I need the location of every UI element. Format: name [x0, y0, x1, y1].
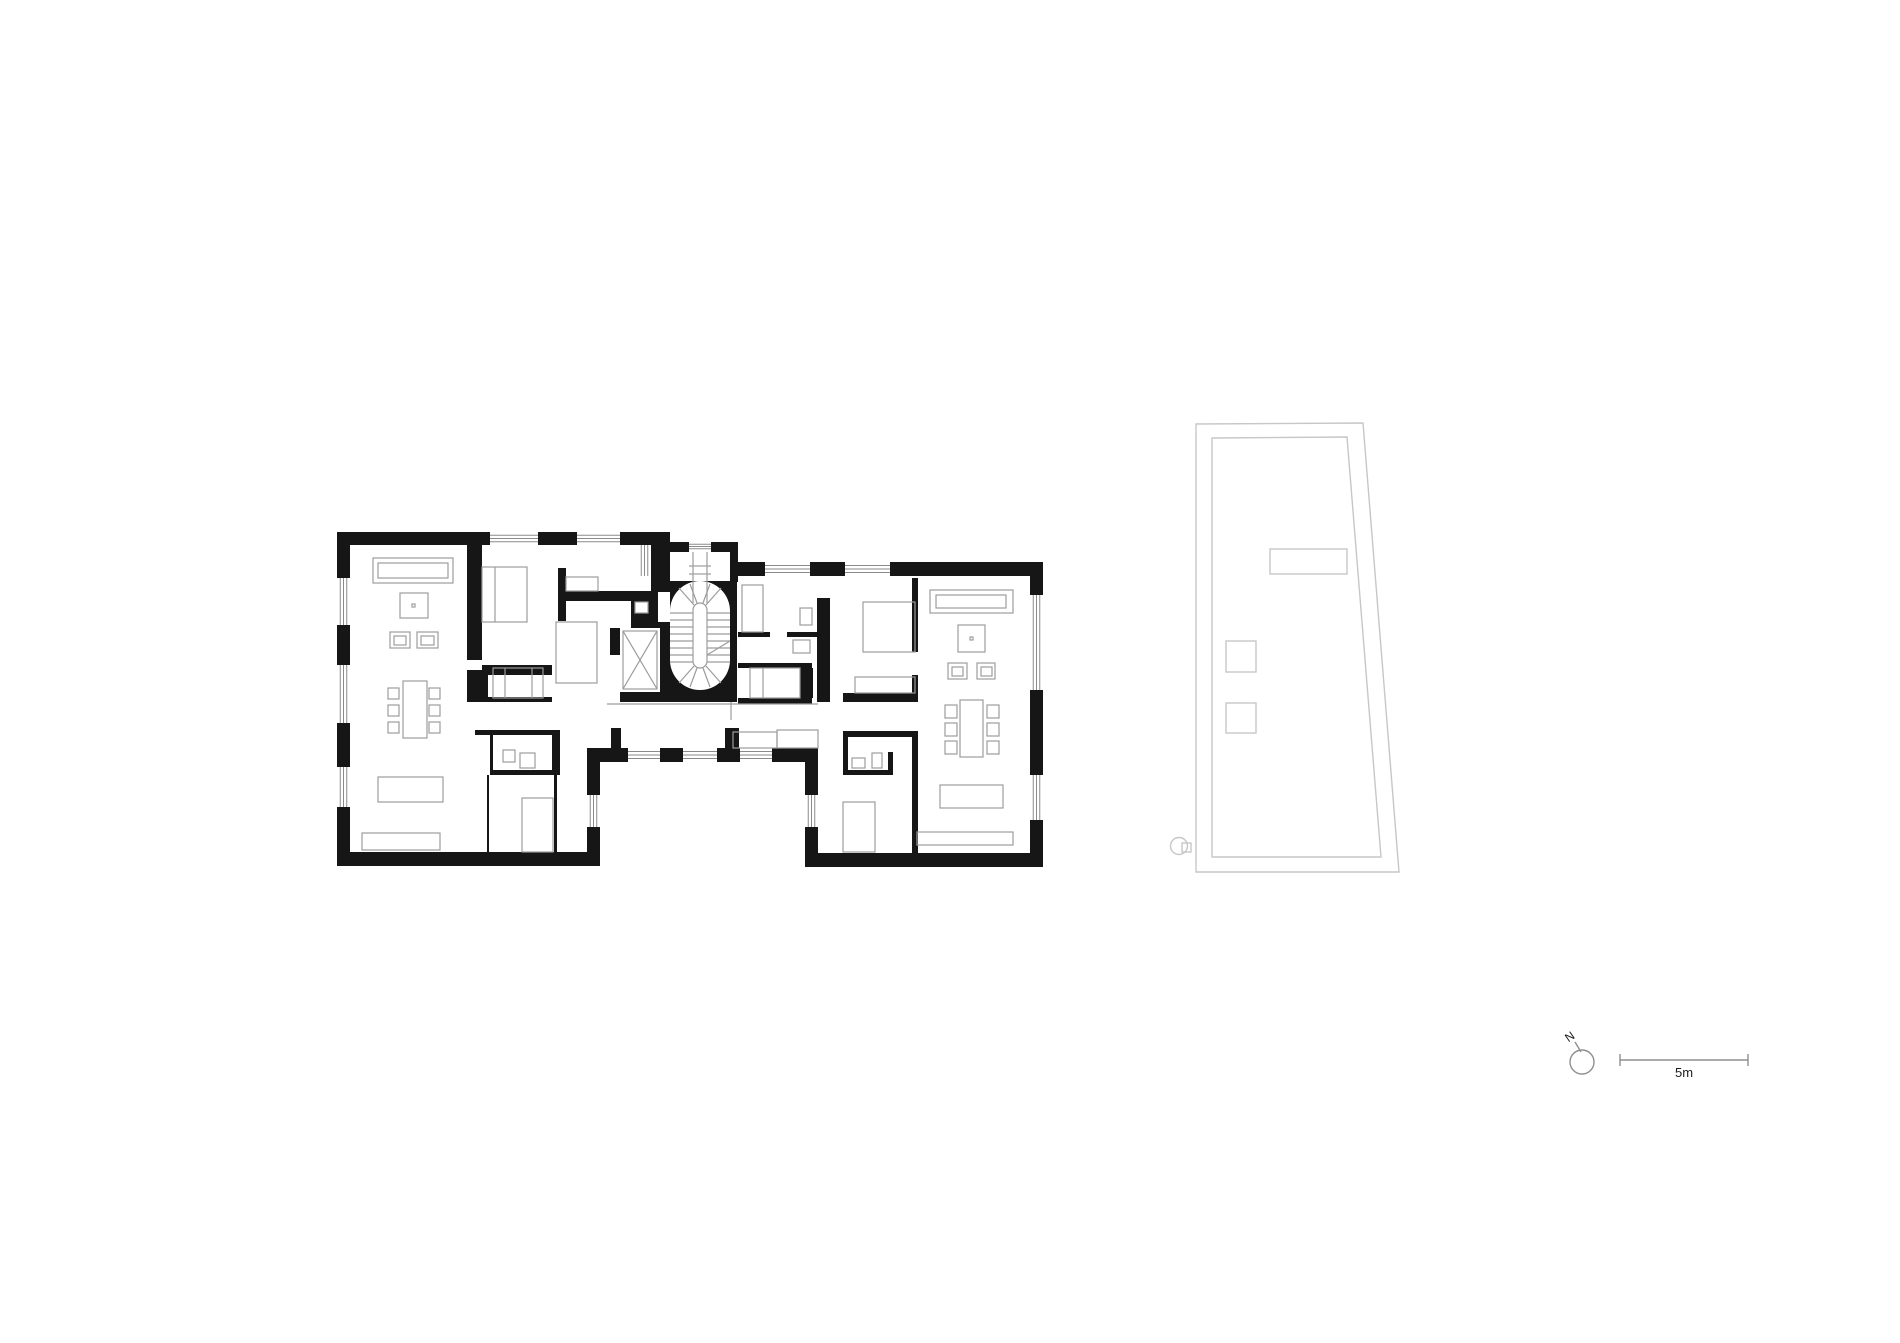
rect: [843, 770, 893, 775]
bed: [863, 602, 915, 652]
bath-fixture: [852, 758, 865, 768]
coffee-table: [400, 593, 428, 618]
scale-label: 5m: [1675, 1065, 1693, 1080]
window: [845, 566, 890, 573]
dining-table: [403, 681, 427, 738]
window: [590, 795, 597, 827]
closet: [742, 585, 763, 632]
wall-west: [337, 532, 350, 578]
sideboard: [378, 777, 443, 802]
entry-stub-right: [725, 728, 739, 748]
wall-top-left: [337, 532, 490, 545]
north-circle: [1570, 1050, 1594, 1074]
site-outline: [1171, 423, 1400, 872]
window: [689, 544, 711, 549]
rect: [981, 667, 992, 676]
rect: [970, 637, 973, 640]
floor-plan-drawing: N5m: [0, 0, 1900, 1343]
rect: [538, 532, 577, 545]
wall-bottom-right-wing: [805, 853, 1043, 867]
rect: [421, 636, 434, 645]
rect: [738, 663, 812, 668]
chair: [429, 688, 440, 699]
window: [577, 535, 620, 542]
rect: [558, 591, 658, 601]
courtyard-wall-right: [805, 748, 818, 795]
chair: [429, 722, 440, 733]
window: [808, 795, 815, 827]
rect: [738, 698, 812, 704]
roof-element: [1270, 549, 1347, 574]
window: [340, 767, 347, 807]
coffee-table: [958, 625, 985, 652]
low-cabinet: [362, 833, 440, 850]
sideboard: [940, 785, 1003, 808]
scale-bar: 5m: [1620, 1054, 1748, 1080]
bath-fixture: [503, 750, 515, 762]
rect: [587, 827, 600, 852]
window: [765, 566, 810, 573]
partition-right-bedroom: [817, 598, 830, 702]
partition-living-bedroom: [467, 545, 482, 660]
rect: [1030, 690, 1043, 775]
rect: [552, 730, 560, 775]
chair: [388, 688, 399, 699]
bath-shelf: [566, 577, 598, 591]
rect: [843, 693, 918, 702]
rect: [394, 636, 406, 645]
wall-top-right: [890, 562, 1043, 576]
bed: [482, 567, 527, 622]
roof-element: [1226, 703, 1256, 733]
niche: [635, 602, 648, 613]
bath-fixture: [872, 753, 882, 768]
wall-bottom-left-wing: [337, 852, 600, 866]
drawing-sheet: N5m: [0, 0, 1900, 1343]
rect: [952, 667, 963, 676]
rect: [554, 775, 557, 852]
rect: [487, 775, 489, 852]
window: [1033, 595, 1040, 690]
rect: [378, 563, 448, 578]
rect: [800, 668, 813, 698]
rect: [888, 752, 893, 775]
window: [340, 578, 347, 625]
chair: [945, 705, 957, 718]
niche: [800, 608, 812, 625]
rect: [337, 625, 350, 665]
rect: [412, 604, 415, 607]
bed: [522, 798, 553, 852]
bed: [843, 802, 875, 852]
window: [1033, 775, 1040, 820]
door-strip: [607, 655, 620, 702]
rect: [1030, 820, 1043, 867]
stair-bay-wall: [670, 542, 689, 552]
site-boundary-inner: [1212, 437, 1381, 857]
stair-newel: [693, 603, 707, 668]
sideboard: [373, 558, 453, 583]
rect: [337, 723, 350, 767]
chair: [388, 722, 399, 733]
rect: [490, 770, 555, 775]
courtyard-wall-top: [587, 748, 628, 762]
rect: [660, 748, 683, 762]
rect: [490, 735, 493, 770]
low-cabinet: [917, 832, 1013, 845]
chair: [987, 723, 999, 736]
window: [340, 665, 347, 723]
north-indicator: N: [1562, 1029, 1594, 1074]
rect: [711, 542, 730, 552]
roof-element: [1226, 641, 1256, 672]
rect: [936, 595, 1006, 608]
rect: [717, 748, 740, 762]
rect: [651, 532, 670, 592]
chair: [945, 723, 957, 736]
wardrobe: [750, 668, 800, 698]
dining-table: [960, 700, 983, 757]
window: [740, 752, 772, 759]
hall-cabinet: [733, 732, 777, 748]
bench: [855, 677, 915, 693]
rect: [475, 730, 555, 735]
plan-walls: [337, 532, 1043, 867]
rect: [738, 632, 770, 637]
entry-door: [683, 752, 717, 759]
sideboard: [930, 590, 1013, 613]
rect: [810, 562, 845, 576]
chair: [945, 741, 957, 754]
window: [490, 535, 538, 542]
hall-closet: [556, 622, 597, 683]
rect: [843, 731, 915, 737]
niche: [793, 640, 810, 653]
bath-fixture: [520, 753, 535, 768]
wall-top-center: [730, 562, 765, 576]
chair: [987, 741, 999, 754]
chair: [987, 705, 999, 718]
chair: [429, 705, 440, 716]
rect: [805, 827, 818, 853]
tree-marker: [1171, 838, 1188, 855]
window: [641, 545, 648, 576]
rect: [843, 737, 848, 775]
entry-stub-left: [611, 728, 621, 748]
chair: [388, 705, 399, 716]
window: [628, 752, 660, 759]
hall-cabinet: [777, 730, 818, 748]
